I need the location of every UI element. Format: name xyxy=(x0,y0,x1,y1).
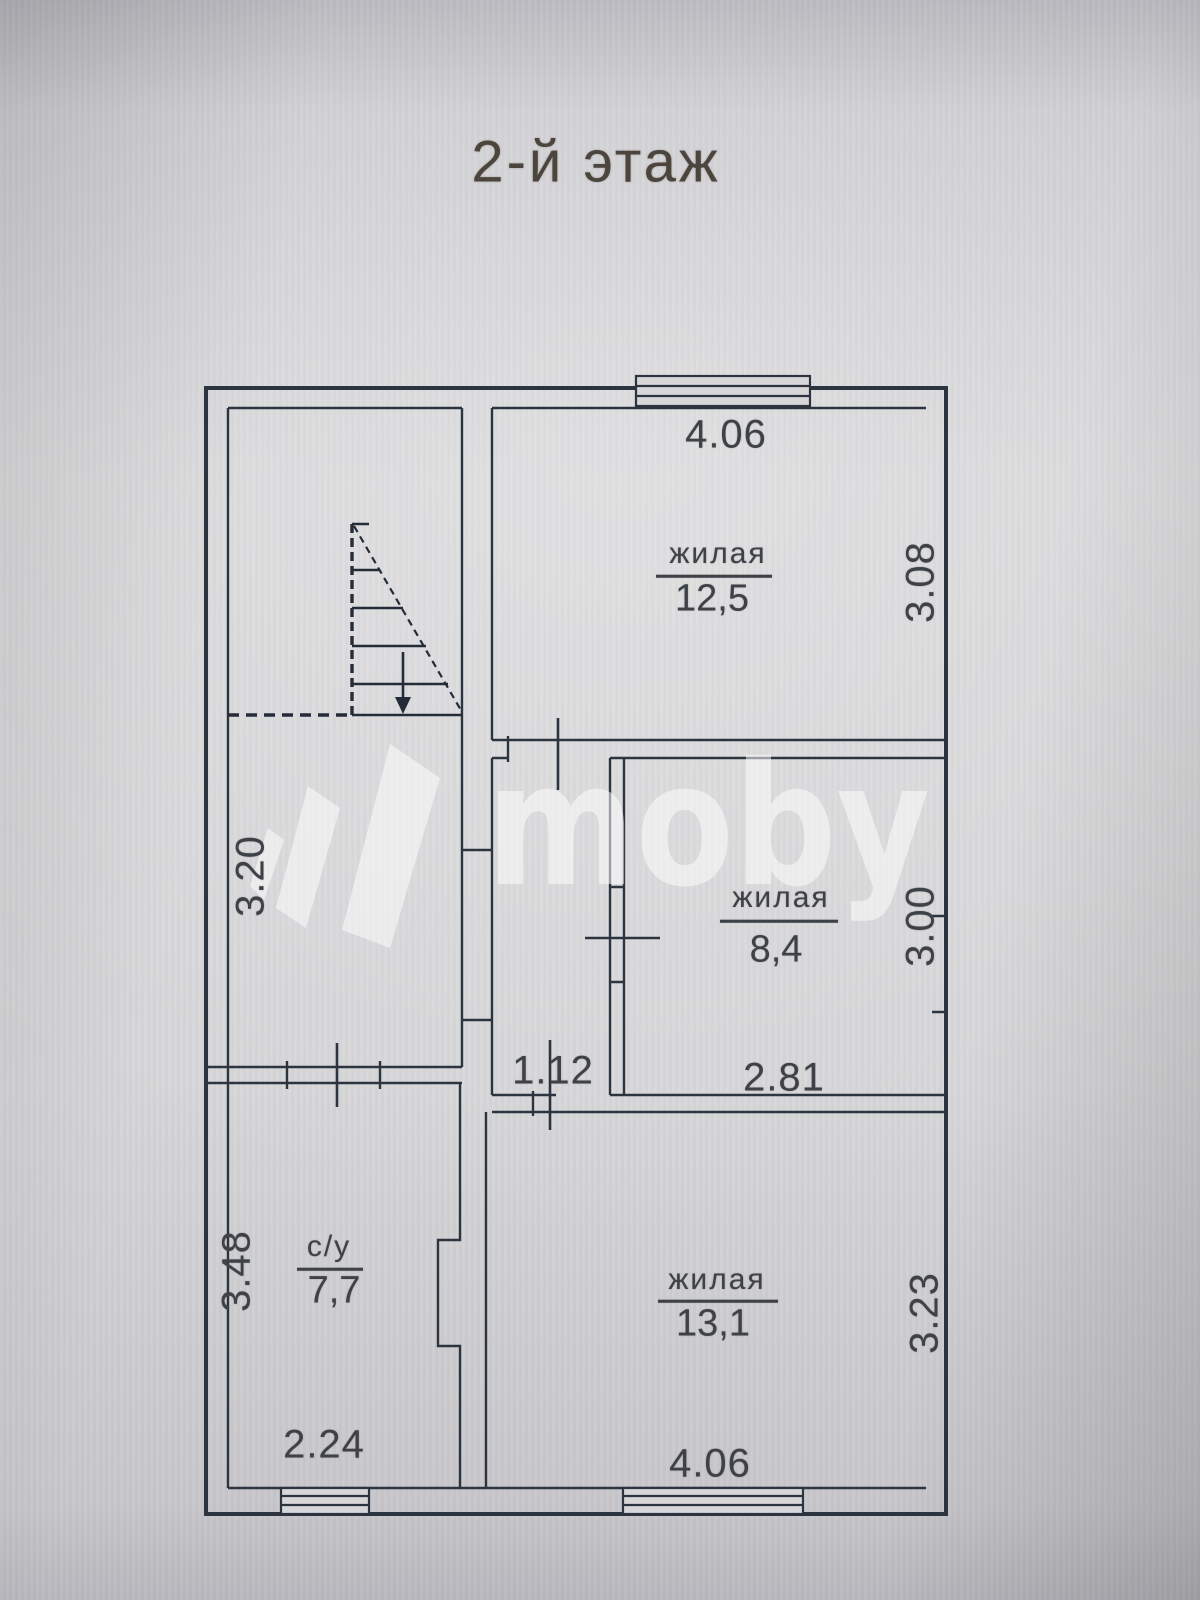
dim-top-width: 4.06 xyxy=(685,413,767,458)
dim-bathroom-height: 3.48 xyxy=(215,1230,260,1312)
outer-walls xyxy=(206,388,946,1514)
room-area-living-131: 13,1 xyxy=(676,1303,750,1346)
dim-hall-height: 3.20 xyxy=(229,835,274,917)
window-bottom-right xyxy=(623,1488,803,1514)
room-label-living-84: жилая xyxy=(732,881,829,915)
moby-logo-icon xyxy=(250,744,440,948)
room-label-living-125: жилая xyxy=(669,537,766,571)
dim-living125-height: 3.08 xyxy=(899,541,944,623)
dim-corridor-width: 1.12 xyxy=(512,1049,594,1094)
room-area-bathroom: 7,7 xyxy=(308,1270,361,1313)
dim-living84-width: 2.81 xyxy=(743,1056,825,1101)
floor-plan-photo: 2-й этаж xyxy=(0,0,1200,1600)
floor-plan: moby xyxy=(0,0,1200,1600)
staircase xyxy=(228,524,462,715)
room-area-living-125: 12,5 xyxy=(675,578,749,621)
room-label-bathroom: с/у xyxy=(307,1230,351,1264)
dim-living84-height: 3.00 xyxy=(899,885,944,967)
dim-living131-width: 4.06 xyxy=(669,1442,751,1487)
dim-living131-height: 3.23 xyxy=(903,1272,948,1354)
dim-bathroom-width: 2.24 xyxy=(283,1423,365,1468)
interior-walls xyxy=(206,408,946,1488)
room-divider-living-84 xyxy=(720,920,838,923)
moby-wordmark: moby xyxy=(486,727,930,925)
room-label-living-131: жилая xyxy=(668,1263,765,1297)
window-top xyxy=(636,376,810,406)
window-bottom-left xyxy=(281,1488,369,1514)
room-area-living-84: 8,4 xyxy=(750,929,803,972)
